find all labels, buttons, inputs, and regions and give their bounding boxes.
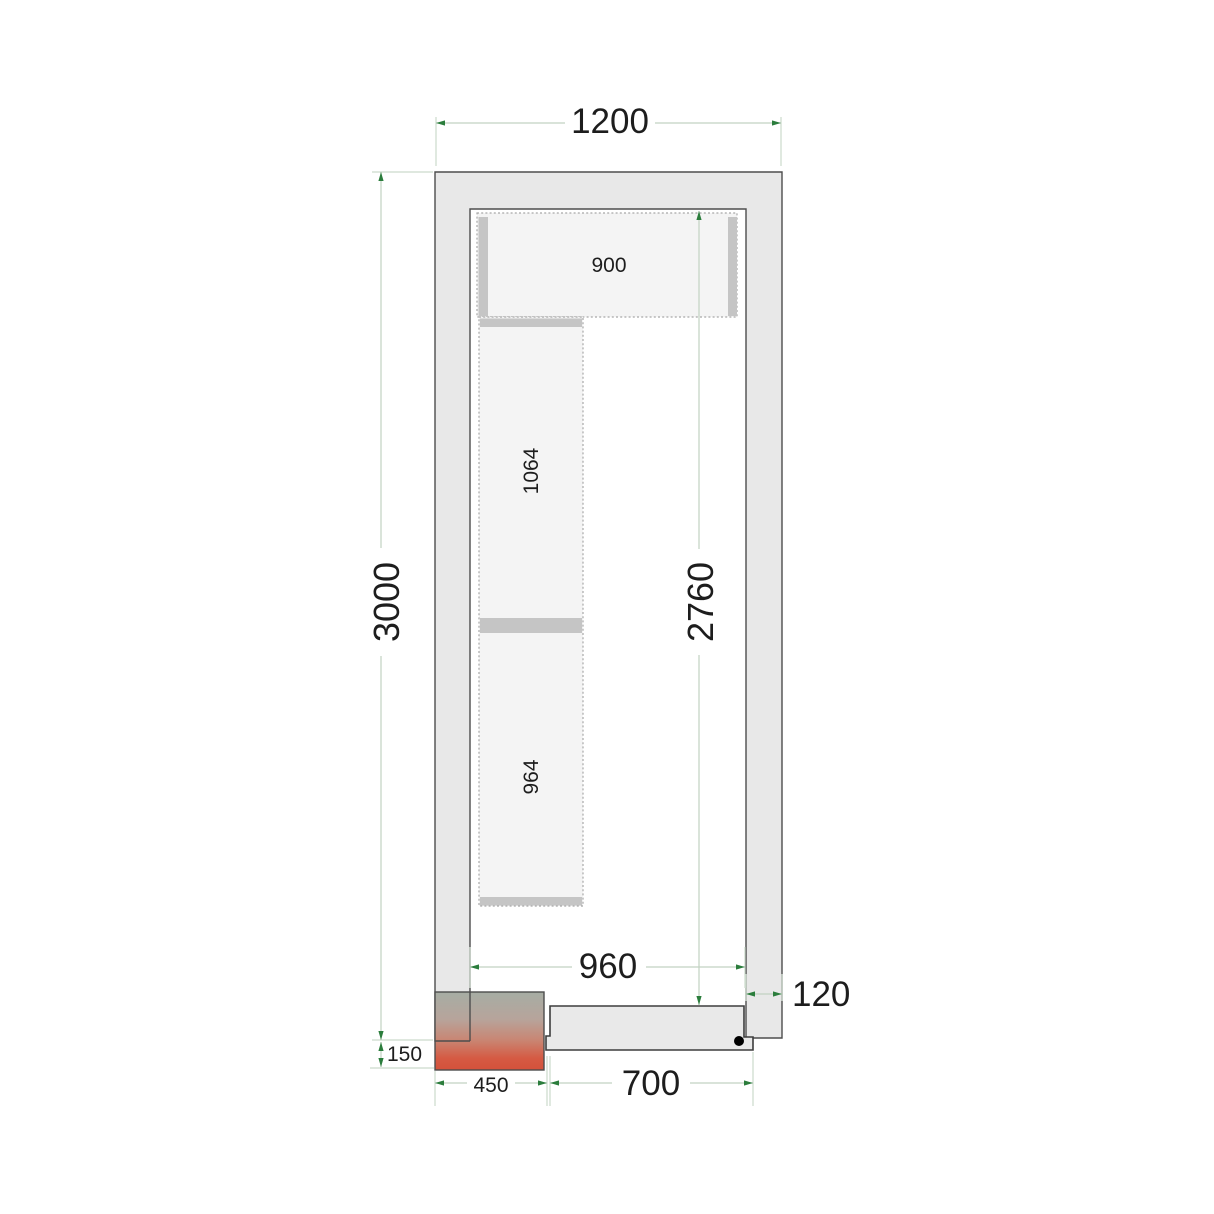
arrow-down-icon — [378, 1031, 383, 1040]
arrow-up-icon — [378, 1042, 383, 1051]
dim-inner-width: 960 — [470, 947, 745, 988]
arrow-down-icon — [696, 996, 701, 1005]
arrow-left-icon — [435, 1080, 444, 1085]
arrow-up-icon — [378, 172, 383, 181]
shelf-support-bar-left — [479, 217, 489, 316]
arrow-right-icon — [772, 120, 781, 125]
dim-unit-depth-label: 150 — [387, 1043, 422, 1066]
arrow-right-icon — [744, 1080, 753, 1085]
shelf-support-bar-middle — [480, 618, 582, 633]
dim-outer-width-label: 1200 — [571, 102, 649, 141]
arrow-left-icon — [436, 120, 445, 125]
shelf-side-column — [479, 317, 583, 906]
dim-outer-length: 3000 — [364, 172, 433, 1040]
door-leaf — [546, 1006, 753, 1050]
dim-wall-thickness-label: 120 — [792, 975, 850, 1014]
shelf-side-upper-label: 1064 — [520, 447, 543, 494]
dim-unit-width-label: 450 — [473, 1074, 508, 1097]
shelf-support-bar-right — [728, 217, 737, 316]
dim-inner-width-label: 960 — [579, 947, 637, 986]
arrow-right-icon — [736, 964, 745, 969]
condensing-unit-box — [435, 992, 544, 1070]
shelf-side-lower-label: 964 — [520, 759, 543, 794]
arrow-down-icon — [378, 1058, 383, 1067]
shelf-support-bar-top — [480, 319, 582, 328]
dim-inner-length: 2760 — [680, 211, 721, 1005]
floor-plan-page: 900 1064 964 1200 3000 2760 — [0, 0, 1214, 1214]
arrow-left-icon — [550, 1080, 559, 1085]
dim-inner-length-label: 2760 — [680, 562, 721, 642]
dim-door-width-label: 700 — [622, 1064, 680, 1103]
arrow-right-icon — [538, 1080, 547, 1085]
door-handle-dot — [734, 1036, 744, 1046]
door — [546, 1006, 753, 1050]
cold-room-floor-plan: 900 1064 964 1200 3000 2760 — [0, 0, 1214, 1214]
shelf-top-label: 900 — [591, 254, 626, 277]
dim-unit-depth: 150 — [370, 1042, 434, 1068]
arrow-left-icon — [470, 964, 479, 969]
dim-outer-width: 1200 — [436, 102, 781, 166]
dim-outer-length-label: 3000 — [366, 562, 407, 642]
condensing-unit — [435, 992, 544, 1070]
dim-door-width: 700 — [550, 1052, 753, 1106]
shelf-support-bar-bottom — [480, 897, 582, 906]
